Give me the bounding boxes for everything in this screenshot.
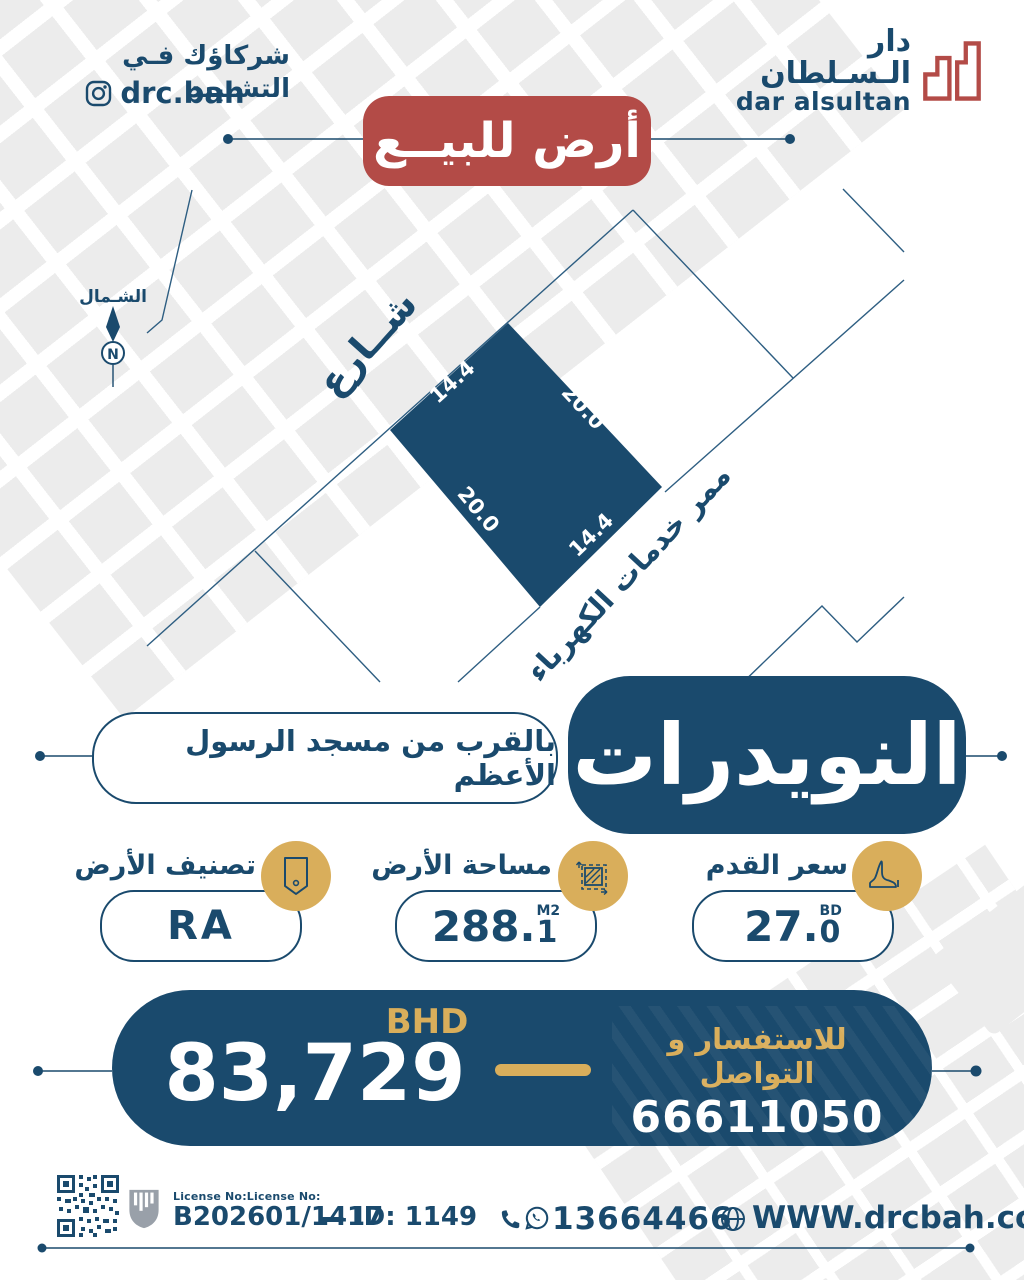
electricity-corridor-label: ممر خدمات الكهرباء — [520, 458, 738, 688]
instagram-icon — [85, 80, 112, 107]
land-area-value: 288. — [432, 902, 536, 951]
brand-name-arabic: دار الـسـلطان — [733, 26, 911, 89]
brand-logo: دار الـسـلطان dar alsultan — [733, 26, 983, 115]
for-sale-badge: أرض للبيــع — [363, 96, 651, 186]
separator-dash — [320, 1217, 344, 1222]
price-per-foot-label: سعر القدم — [652, 850, 848, 881]
phone-icon — [500, 1208, 522, 1230]
land-area-value-box: 288. M2 1 — [395, 890, 597, 962]
price-per-foot-value: 27. — [744, 902, 818, 951]
classification-icon-circle — [261, 841, 331, 911]
land-area-label: مساحة الأرض — [356, 850, 552, 881]
land-area-icon-circle — [558, 841, 628, 911]
area-name-pill: النويدرات — [568, 676, 966, 834]
poster: 14.4 20.0 20.0 14.4 شــارع ممر خدمات الك… — [0, 0, 1024, 1280]
instagram-handle-text: drc.bah — [120, 76, 244, 110]
globe-icon — [720, 1206, 746, 1232]
classification-value: RA — [167, 903, 235, 949]
nearby-landmark-pill: بالقرب من مسجد الرسول الأعظم — [92, 712, 558, 804]
brand-logo-icon — [921, 35, 983, 107]
land-area-fraction: 1 — [536, 918, 557, 948]
price-amount: 83,729 — [140, 1034, 490, 1116]
area-dimensions-icon — [573, 856, 613, 896]
instagram-handle[interactable]: drc.bah — [40, 76, 290, 110]
foot-icon — [867, 858, 907, 894]
plot-dim-bottom-left: 20.0 — [453, 482, 505, 537]
license-shield-icon — [127, 1188, 161, 1230]
contact-phone-number[interactable]: 66611050 — [612, 1092, 902, 1143]
price-banner: BHD 83,729 للاستفسار و التواصل 66611050 — [112, 990, 932, 1146]
banner-divider-dash — [495, 1064, 591, 1076]
plot-dim-bottom-right: 14.4 — [564, 508, 618, 561]
footer-phone-number[interactable]: 13664466 — [552, 1201, 733, 1237]
qr-code[interactable] — [57, 1175, 119, 1237]
contact-inquiry-label: للاستفسار و التواصل — [612, 1022, 902, 1090]
plot-dim-top-right: 20.0 — [557, 380, 610, 434]
whatsapp-icon[interactable] — [524, 1205, 550, 1231]
price-per-foot-fraction: 0 — [820, 918, 841, 948]
shield-badge-icon — [279, 855, 313, 897]
listing-id: ID: 1149 — [354, 1202, 477, 1232]
brand-name-english: dar alsultan — [733, 89, 911, 115]
website-url[interactable]: WWW.drcbah.com — [752, 1200, 1024, 1236]
price-per-foot-icon-circle — [852, 841, 922, 911]
classification-label: تصنيف الأرض — [60, 850, 256, 881]
license-number-value: B202601/1417 — [173, 1202, 383, 1232]
